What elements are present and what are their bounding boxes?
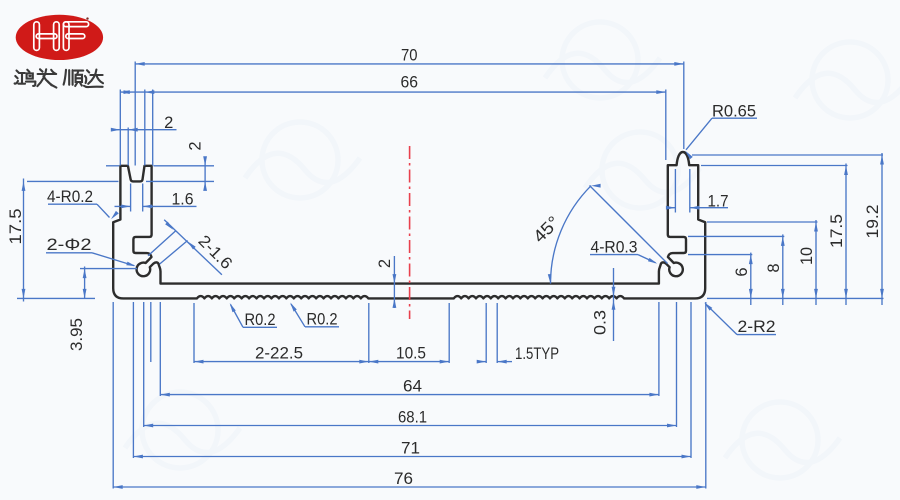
svg-text:17.5: 17.5 xyxy=(7,209,25,245)
svg-text:4-R0.2: 4-R0.2 xyxy=(47,188,93,206)
svg-text:2-22.5: 2-22.5 xyxy=(255,344,303,362)
svg-text:2: 2 xyxy=(187,141,205,150)
svg-text:76: 76 xyxy=(394,470,413,488)
svg-text:66: 66 xyxy=(401,74,419,92)
svg-text:2: 2 xyxy=(376,259,394,268)
svg-text:2: 2 xyxy=(164,114,173,132)
svg-text:10: 10 xyxy=(798,247,816,265)
svg-text:2-Φ2: 2-Φ2 xyxy=(47,236,92,254)
svg-text:17.5: 17.5 xyxy=(828,214,846,248)
svg-text:70: 70 xyxy=(401,46,418,64)
svg-text:1.7: 1.7 xyxy=(708,192,729,210)
svg-text:2-R2: 2-R2 xyxy=(738,318,776,336)
svg-text:10.5: 10.5 xyxy=(396,344,426,362)
svg-text:8: 8 xyxy=(765,263,783,272)
svg-text:64: 64 xyxy=(403,377,422,395)
svg-text:6: 6 xyxy=(733,267,751,276)
svg-text:1.6: 1.6 xyxy=(172,191,194,209)
svg-text:3.95: 3.95 xyxy=(68,318,86,351)
svg-text:R0.2: R0.2 xyxy=(245,311,276,329)
svg-text:71: 71 xyxy=(401,439,420,457)
svg-text:0.3: 0.3 xyxy=(592,310,610,335)
svg-text:19.2: 19.2 xyxy=(864,205,882,239)
svg-text:68.1: 68.1 xyxy=(398,408,427,426)
svg-text:1.5TYP: 1.5TYP xyxy=(515,345,559,363)
svg-text:R0.2: R0.2 xyxy=(307,310,338,328)
svg-text:4-R0.3: 4-R0.3 xyxy=(591,239,638,257)
